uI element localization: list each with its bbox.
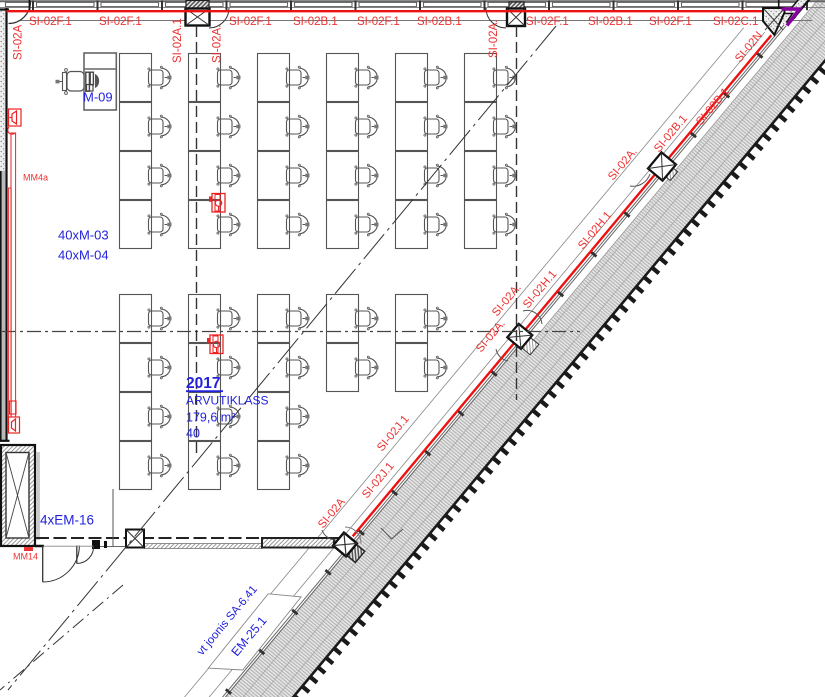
svg-text:M-09: M-09 — [83, 90, 113, 105]
svg-text:ARVUTIKLASS: ARVUTIKLASS — [186, 394, 268, 408]
svg-text:2017: 2017 — [186, 375, 220, 392]
svg-text:SI-02F.1: SI-02F.1 — [357, 16, 400, 28]
svg-text:SI-02F.1: SI-02F.1 — [649, 16, 692, 28]
svg-text:SI-02F.1: SI-02F.1 — [29, 16, 72, 28]
svg-text:40xM-03: 40xM-03 — [58, 228, 109, 243]
svg-text:SI-02A.: SI-02A. — [488, 20, 500, 58]
svg-text:SI-02A.1: SI-02A.1 — [172, 18, 184, 63]
svg-text:179,6 m²: 179,6 m² — [186, 411, 235, 425]
svg-text:SI-02F.1: SI-02F.1 — [229, 16, 272, 28]
svg-text:SI-02B.1: SI-02B.1 — [417, 16, 462, 28]
svg-text:SI-02B.1: SI-02B.1 — [293, 16, 338, 28]
svg-text:SI-02A.: SI-02A. — [212, 25, 224, 63]
svg-text:SI-02C.1: SI-02C.1 — [713, 16, 758, 28]
svg-text:SI-02F.1: SI-02F.1 — [526, 16, 569, 28]
svg-text:MM4a: MM4a — [23, 173, 48, 183]
svg-text:4xEM-16: 4xEM-16 — [40, 513, 94, 528]
svg-text:40xM-04: 40xM-04 — [58, 248, 109, 263]
svg-text:SI-02B.1: SI-02B.1 — [588, 16, 633, 28]
svg-text:SI-02F.1: SI-02F.1 — [99, 16, 142, 28]
svg-text:40: 40 — [186, 427, 200, 441]
svg-text:MM14: MM14 — [13, 552, 38, 562]
svg-text:SI-02A: SI-02A — [13, 25, 25, 60]
